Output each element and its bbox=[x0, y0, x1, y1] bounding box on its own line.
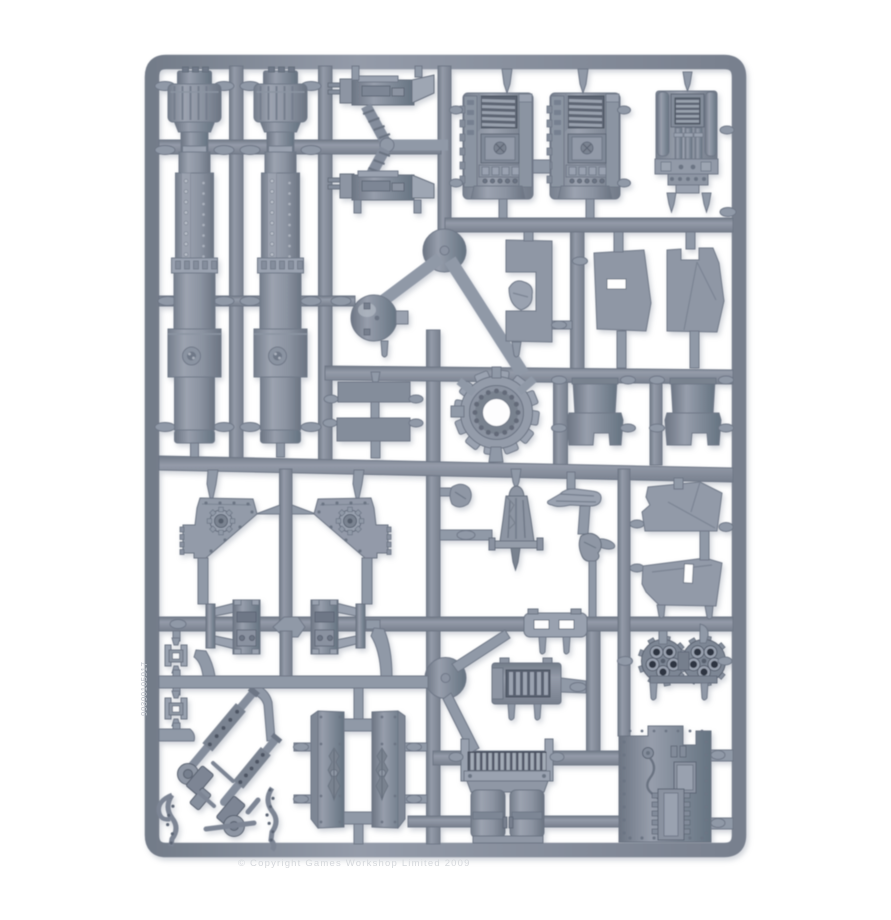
svg-text:© Copyright Games Workshop Lim: © Copyright Games Workshop Limited 2009 bbox=[238, 858, 471, 869]
svg-text:99390105917: 99390105917 bbox=[140, 662, 149, 716]
